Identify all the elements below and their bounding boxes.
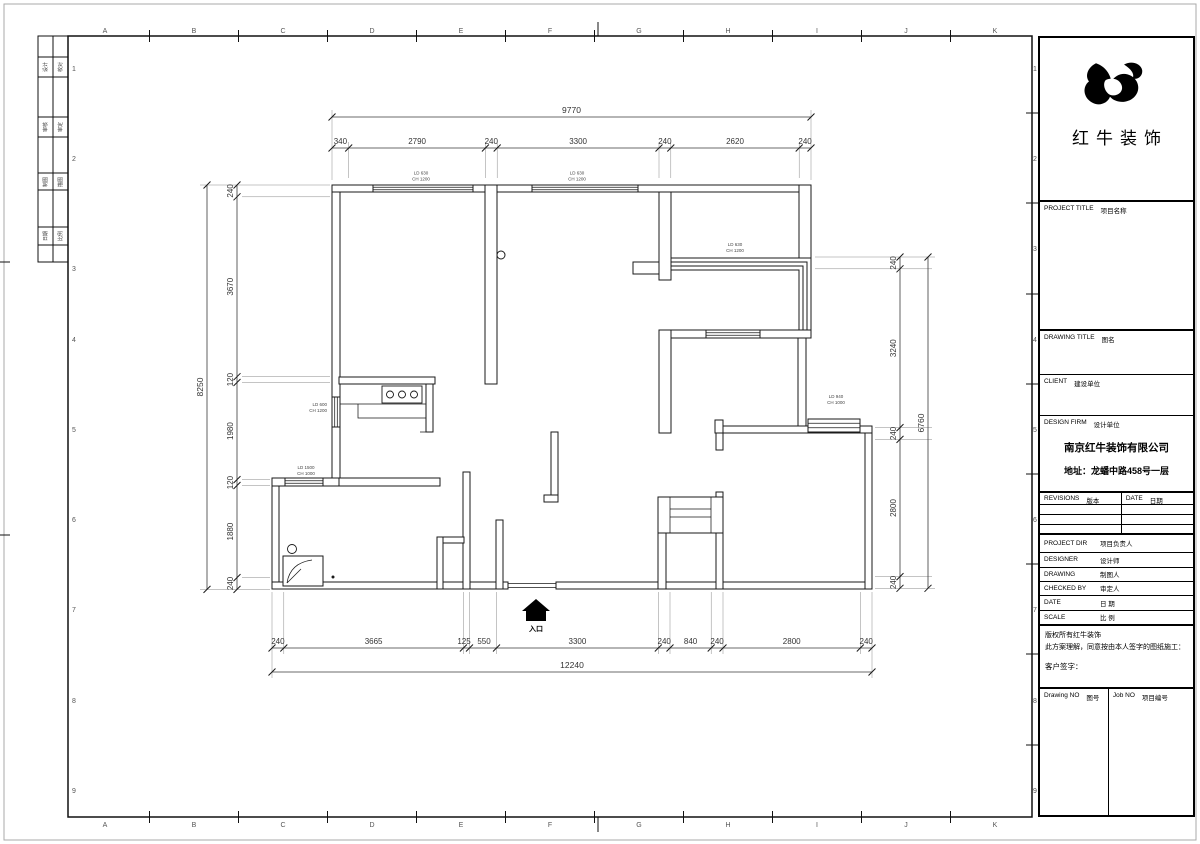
dim-value: 240 — [889, 575, 898, 589]
grid-number: 7 — [1033, 607, 1037, 614]
grid-letter: F — [548, 28, 552, 35]
rev-date-zh: 日期 — [1150, 495, 1163, 505]
grid-number: 8 — [72, 698, 76, 705]
dim-value: 2790 — [408, 137, 426, 146]
grid-number: 3 — [1033, 246, 1037, 253]
project-title-zh: 项目名称 — [1101, 205, 1127, 215]
copyright-line2: 此方案理解，同意按由本人签字的图纸施工： — [1045, 642, 1188, 652]
grid-number: 2 — [72, 156, 76, 163]
bathroom-fixtures — [283, 545, 335, 587]
grid-letter: D — [369, 28, 374, 35]
grid-number: 4 — [1033, 337, 1037, 344]
dim-value: 3300 — [569, 137, 587, 146]
dim-value: 240 — [226, 184, 235, 198]
dimensions-bottom: 12240 240 3665 125 550 3300 240 840 240 … — [269, 592, 876, 678]
entrance-icon: 入口 — [522, 599, 550, 633]
window-label: LD 940 — [829, 394, 844, 399]
signoff-column: 设计 校对 审核 审定 制图 描图 日期 比例 — [38, 36, 68, 262]
revisions-header: REVISIONS 版本 DATE 日期 — [1040, 493, 1193, 505]
dim-value: 3300 — [569, 637, 587, 646]
grid-number: 2 — [1033, 156, 1037, 163]
window-label: LD 630 — [570, 171, 585, 176]
window-label: CH 1000 — [297, 471, 315, 476]
grid-number: 6 — [1033, 517, 1037, 524]
signoff-label: 审定 — [57, 122, 64, 132]
project-title-section: PROJECT TITLE 项目名称 — [1040, 202, 1193, 331]
revisions-zh: 版本 — [1086, 495, 1099, 505]
designer-zh: 设计师 — [1100, 555, 1120, 565]
dim-value: 240 — [710, 637, 724, 646]
grid-letter: A — [103, 28, 108, 35]
grid-letter: B — [192, 28, 197, 35]
grid-number: 7 — [72, 607, 76, 614]
drawing-zh: 制图人 — [1100, 569, 1120, 579]
dim-value: 240 — [860, 637, 874, 646]
grid-letter: E — [459, 28, 464, 35]
signoff-label: 校对 — [57, 62, 64, 72]
dim-value: 125 — [457, 637, 471, 646]
signoff-label: 日期 — [43, 231, 49, 241]
date-en: DATE — [1044, 599, 1100, 606]
client-en: CLIENT — [1044, 378, 1067, 388]
dimensions-left: 8250 240 3670 120 1980 120 1880 240 — [195, 182, 330, 593]
dim-value: 8250 — [195, 377, 205, 396]
dim-value: 9770 — [562, 105, 581, 115]
drawing-number-section: Drawing NO 图号 Job NO 项目编号 — [1040, 689, 1193, 816]
grid-letter: K — [993, 822, 998, 829]
window — [285, 478, 323, 486]
window — [532, 185, 638, 192]
grid-letter: C — [280, 822, 285, 829]
scale-zh: 比 例 — [1100, 612, 1115, 622]
grid-number: 5 — [72, 427, 76, 434]
rev-date-en: DATE — [1126, 495, 1143, 505]
job-no-en: Job NO — [1113, 692, 1135, 702]
dim-value: 3240 — [889, 339, 898, 357]
grid-letter: G — [636, 822, 641, 829]
dim-value: 240 — [889, 426, 898, 440]
grid-letter: J — [904, 28, 908, 35]
dim-value: 12240 — [560, 660, 584, 670]
dim-value: 340 — [334, 137, 348, 146]
dim-value: 2800 — [783, 637, 801, 646]
grid-letter: I — [816, 822, 818, 829]
grid-number: 6 — [72, 517, 76, 524]
design-firm-zh: 设计单位 — [1094, 419, 1120, 429]
grid-number: 3 — [72, 266, 76, 273]
design-firm-section: DESIGN FIRM 设计单位 南京红牛装饰有限公司 地址：龙蟠中路458号一… — [1040, 416, 1193, 493]
window-label: LD 600 — [312, 402, 327, 407]
grid-letter: D — [369, 822, 374, 829]
grid-number: 4 — [72, 337, 76, 344]
title-block: 红牛装饰 PROJECT TITLE 项目名称 DRAWING TITLE 图名… — [1038, 36, 1195, 817]
grid-number: 5 — [1033, 427, 1037, 434]
date-zh: 日 期 — [1100, 598, 1115, 608]
grid-number: 1 — [1033, 66, 1037, 73]
window-label: CH 1200 — [726, 248, 744, 253]
company-logo-section: 红牛装饰 — [1040, 38, 1193, 202]
kitchen-fixtures — [340, 386, 433, 432]
dim-value: 1980 — [226, 422, 235, 440]
designer-en: DESIGNER — [1044, 556, 1100, 563]
grid-letters-bottom: A B C D E F G H I J K — [103, 822, 998, 829]
window — [373, 185, 473, 192]
drawing-row: DRAWING 制图人 — [1040, 568, 1193, 582]
window-label: LD 1500 — [297, 465, 315, 470]
company-name: 红牛装饰 — [1040, 124, 1193, 149]
outer-walls — [272, 185, 872, 589]
window-label: CH 1200 — [412, 177, 430, 182]
grid-letter: J — [904, 822, 908, 829]
drawing-title-zh: 图名 — [1102, 334, 1115, 344]
project-dir-en: PROJECT DIR — [1044, 540, 1100, 547]
duct-shaft — [658, 497, 723, 589]
grid-number: 8 — [1033, 698, 1037, 705]
dim-value: 550 — [477, 637, 491, 646]
project-dir-zh: 项目负责人 — [1100, 538, 1133, 548]
drawing-title-en: DRAWING TITLE — [1044, 334, 1095, 344]
grid-letter: B — [192, 822, 197, 829]
dim-value: 840 — [684, 637, 698, 646]
drain-icon — [288, 545, 297, 554]
dim-value: 6760 — [916, 413, 926, 432]
grid-letters-top: A B C D E F G H I J K — [103, 28, 998, 35]
grid-letter: F — [548, 822, 552, 829]
sheet-frame: 设计 校对 审核 审定 制图 描图 日期 比例 A B C D E F G H … — [0, 4, 1196, 840]
firm-address: 地址：龙蟠中路458号一层 — [1040, 464, 1193, 477]
window-label: CH 1200 — [309, 408, 327, 413]
grid-numbers-left: 1 2 3 4 5 6 7 8 9 — [72, 66, 76, 795]
window-label: LD 630 — [728, 242, 743, 247]
revisions-en: REVISIONS — [1044, 495, 1079, 505]
client-section: CLIENT 建设单位 — [1040, 375, 1193, 416]
dim-value: 240 — [485, 137, 499, 146]
grid-letter: I — [816, 28, 818, 35]
dim-value: 3665 — [365, 637, 383, 646]
copyright-section: 版权所有红牛装饰 此方案理解，同意按由本人签字的图纸施工： 客户签字： — [1040, 626, 1193, 689]
window — [706, 330, 760, 338]
revision-row — [1040, 525, 1193, 535]
scale-row: SCALE 比 例 — [1040, 611, 1193, 626]
scale-en: SCALE — [1044, 614, 1100, 621]
signoff-label: 比例 — [57, 231, 64, 241]
entrance-label: 入口 — [528, 625, 543, 633]
grid-number: 9 — [1033, 788, 1037, 795]
grid-number: 1 — [72, 66, 76, 73]
dim-value: 2800 — [889, 499, 898, 517]
signoff-label: 制图 — [42, 177, 49, 187]
project-title-en: PROJECT TITLE — [1044, 205, 1094, 215]
checked-by-row: CHECKED BY 审定人 — [1040, 582, 1193, 596]
dim-value: 120 — [226, 372, 235, 386]
dim-value: 240 — [658, 637, 672, 646]
dim-value: 240 — [658, 137, 672, 146]
window-label: CH 1000 — [827, 400, 845, 405]
revision-row — [1040, 505, 1193, 515]
drawing-no-en: Drawing NO — [1044, 692, 1079, 702]
dim-value: 2620 — [726, 137, 744, 146]
window — [332, 397, 340, 427]
date-row: DATE 日 期 — [1040, 596, 1193, 611]
designer-row: DESIGNER 设计师 — [1040, 553, 1193, 568]
floor-plan-canvas: 设计 校对 审核 审定 制图 描图 日期 比例 A B C D E F G H … — [0, 0, 1200, 844]
dim-value: 240 — [798, 137, 812, 146]
grid-letter: H — [725, 822, 730, 829]
drawing-sheet: 设计 校对 审核 审定 制图 描图 日期 比例 A B C D E F G H … — [0, 0, 1200, 844]
window — [808, 419, 860, 432]
revision-row — [1040, 515, 1193, 525]
grid-number: 9 — [72, 788, 76, 795]
dim-value: 240 — [889, 256, 898, 270]
copyright-line1: 版权所有红牛装饰 — [1045, 630, 1188, 640]
grid-letter: C — [280, 28, 285, 35]
firm-name: 南京红牛装饰有限公司 — [1040, 440, 1193, 455]
window-label: LD 630 — [414, 171, 429, 176]
grid-letter: E — [459, 822, 464, 829]
dim-value: 3670 — [226, 277, 235, 295]
grid-letter: K — [993, 28, 998, 35]
grid-letter: G — [636, 28, 641, 35]
grid-letter: H — [725, 28, 730, 35]
grid-letter: A — [103, 822, 108, 829]
dim-value: 1880 — [226, 522, 235, 540]
dim-value: 120 — [226, 475, 235, 489]
checked-by-en: CHECKED BY — [1044, 585, 1100, 592]
drawing-no-zh: 图号 — [1086, 692, 1099, 702]
signoff-label: 设计 — [42, 62, 49, 72]
drawing-title-section: DRAWING TITLE 图名 — [1040, 331, 1193, 375]
design-firm-en: DESIGN FIRM — [1044, 419, 1087, 429]
dim-value: 240 — [226, 576, 235, 590]
signoff-label: 描图 — [57, 177, 64, 187]
window-label: CH 1200 — [568, 177, 586, 182]
floor-plan: 入口 LD 630 CH 1200 LD 630 CH 1200 LD 630 … — [272, 171, 872, 634]
client-zh: 建设单位 — [1074, 378, 1100, 388]
drawing-en: DRAWING — [1044, 571, 1100, 578]
dim-value: 240 — [271, 637, 285, 646]
balcony-bay-window — [663, 258, 811, 338]
checked-by-zh: 审定人 — [1100, 583, 1120, 593]
grid-numbers-right: 1 2 3 4 5 6 7 8 9 — [1033, 66, 1037, 795]
dimensions-top: 9770 340 2790 240 3300 240 2620 240 — [329, 105, 815, 180]
client-signature-label: 客户签字： — [1045, 661, 1188, 672]
signoff-label: 审核 — [42, 122, 49, 132]
project-dir-row: PROJECT DIR 项目负责人 — [1040, 535, 1193, 553]
job-no-zh: 项目编号 — [1142, 692, 1168, 702]
bull-logo-icon — [1075, 58, 1159, 116]
